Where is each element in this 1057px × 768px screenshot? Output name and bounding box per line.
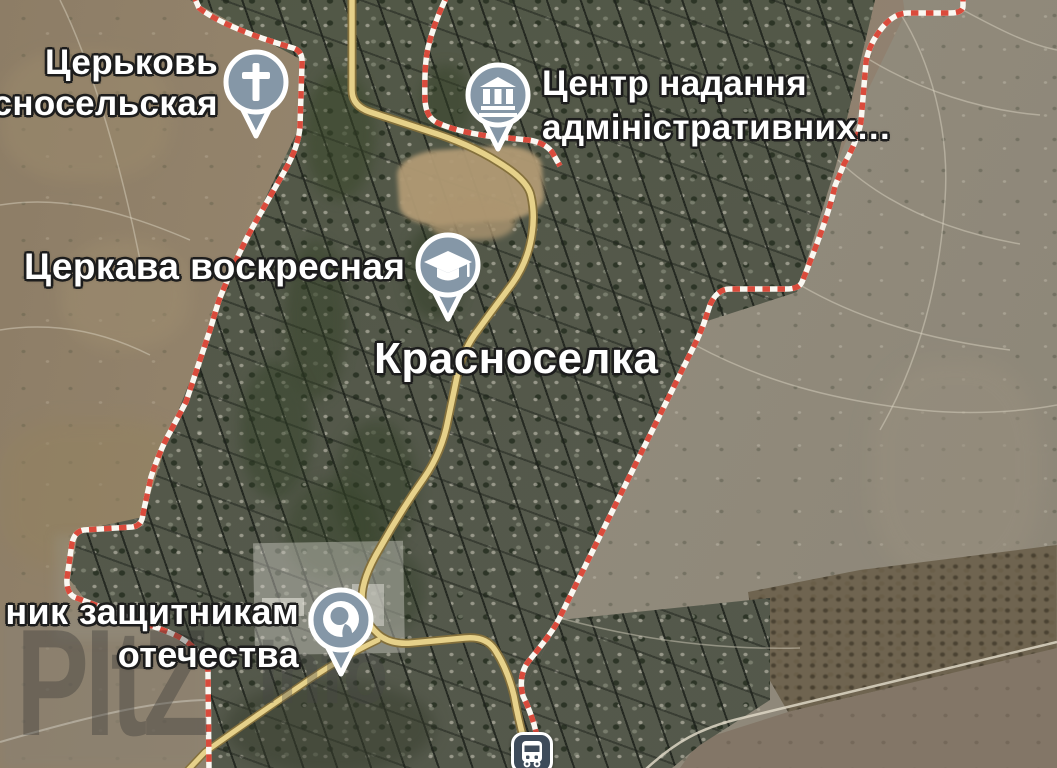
poi-label-line: Центр надання xyxy=(542,62,892,106)
poi-label-church-krasnoselskaya[interactable]: Церьковь сносельская xyxy=(0,42,218,124)
field-patch xyxy=(870,360,1040,580)
poi-label-line: адміністративних… xyxy=(542,106,892,150)
admin-center-pin[interactable] xyxy=(458,55,538,159)
poi-label-line: Церьковь xyxy=(0,42,218,83)
poi-label-admin-center[interactable]: Центр надання адміністративних… xyxy=(542,62,892,150)
monument-pin[interactable] xyxy=(301,580,381,684)
locality-label[interactable]: Красноселка xyxy=(374,334,658,384)
poi-label-church-voskresnaya[interactable]: Церкава воскресная xyxy=(24,246,405,288)
bus-stop-icon[interactable] xyxy=(511,732,553,768)
bus-icon xyxy=(514,735,550,768)
poi-label-line: ник защитникам xyxy=(5,590,299,633)
poi-label-monument[interactable]: ник защитникам отечества xyxy=(5,590,299,676)
church-pin[interactable] xyxy=(216,42,296,146)
trees xyxy=(305,70,375,200)
map-canvas[interactable]: PItZ Info xyxy=(0,0,1057,768)
poi-label-line: отечества xyxy=(5,633,299,676)
school-pin[interactable] xyxy=(408,225,488,329)
poi-label-line: сносельская xyxy=(0,83,218,124)
trees xyxy=(240,360,312,500)
